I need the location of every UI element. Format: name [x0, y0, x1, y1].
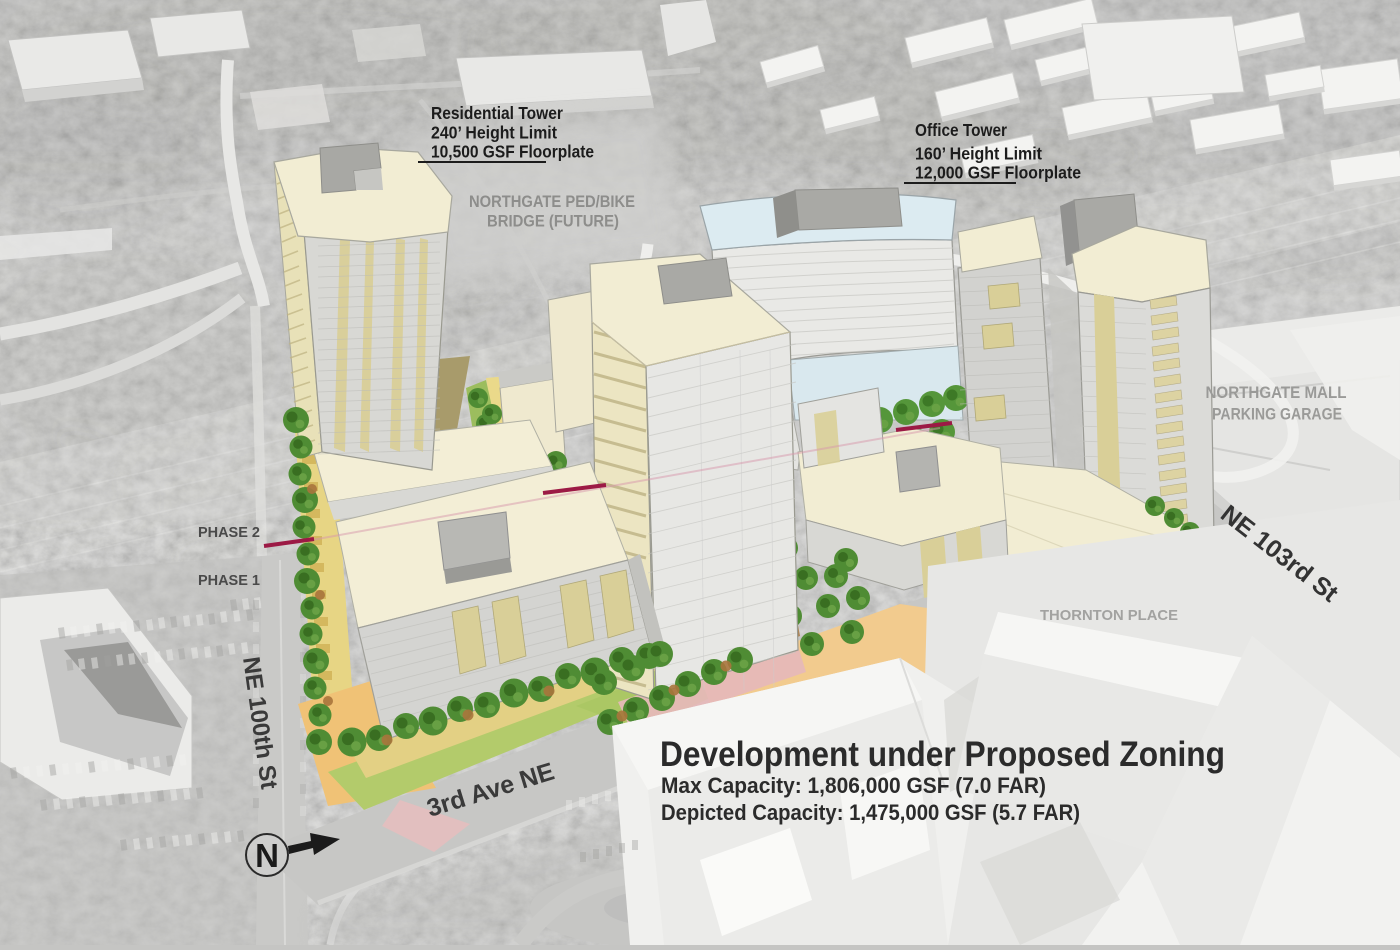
svg-text:Depicted Capacity: 1,475,000 G: Depicted Capacity: 1,475,000 GSF (5.7 FA…: [661, 800, 1080, 825]
svg-text:N: N: [255, 837, 279, 874]
svg-text:240’ Height Limit: 240’ Height Limit: [431, 123, 557, 143]
svg-text:THORNTON PLACE: THORNTON PLACE: [1040, 607, 1178, 624]
svg-text:NORTHGATE PED/BIKE: NORTHGATE PED/BIKE: [469, 193, 635, 211]
svg-text:10,500 GSF Floorplate: 10,500 GSF Floorplate: [431, 142, 594, 162]
svg-text:Residential Tower: Residential Tower: [431, 103, 563, 123]
svg-text:NORTHGATE MALL: NORTHGATE MALL: [1206, 384, 1347, 402]
svg-text:Office Tower: Office Tower: [915, 120, 1007, 140]
svg-text:Max Capacity: 1,806,000 GSF (7: Max Capacity: 1,806,000 GSF (7.0 FAR): [661, 773, 1046, 798]
svg-text:12,000 GSF Floorplate: 12,000 GSF Floorplate: [915, 163, 1081, 183]
svg-text:160’ Height Limit: 160’ Height Limit: [915, 144, 1042, 164]
svg-text:PARKING GARAGE: PARKING GARAGE: [1212, 406, 1342, 424]
svg-text:BRIDGE (FUTURE): BRIDGE (FUTURE): [487, 213, 619, 231]
svg-text:Development under Proposed Zon: Development under Proposed Zoning: [660, 735, 1225, 774]
svg-text:PHASE 1: PHASE 1: [198, 573, 260, 589]
svg-text:PHASE 2: PHASE 2: [198, 525, 260, 541]
